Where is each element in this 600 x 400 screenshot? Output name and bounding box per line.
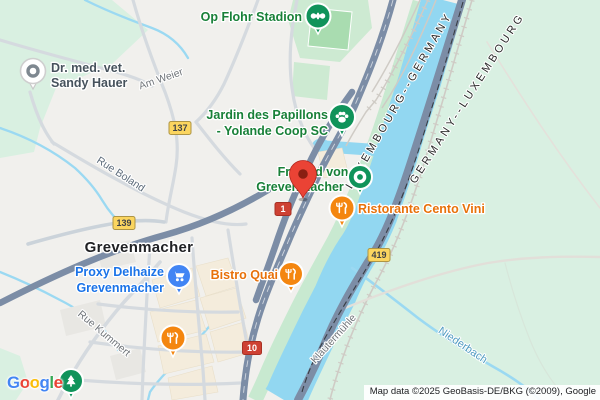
poi-label-bistro-quai[interactable]: Bistro Quai (211, 268, 278, 282)
google-logo[interactable]: Google (7, 373, 63, 393)
stadium-icon (311, 13, 326, 20)
city-label-grevenmacher[interactable]: Grevenmacher (85, 239, 194, 256)
svg-text:419: 419 (371, 250, 386, 260)
poi-label-jardin-line1[interactable]: Jardin des Papillons (206, 108, 328, 122)
route-badge-n10: 10 (243, 342, 262, 355)
poi-label-op-flohr-stadion[interactable]: Op Flohr Stadion (201, 10, 302, 24)
poi-label-jardin-line2[interactable]: - Yolande Coop SC (217, 124, 328, 138)
map-viewport[interactable]: 137 139 419 1 10 Am Weier Rue Boland Rue… (0, 0, 600, 400)
route-badge-n1: 1 (275, 203, 291, 216)
svg-text:10: 10 (247, 343, 257, 353)
route-badge-137: 137 (169, 122, 191, 135)
poi-label-vet-line2[interactable]: Sandy Hauer (51, 76, 128, 90)
route-badge-419: 419 (368, 249, 390, 262)
svg-text:139: 139 (116, 218, 131, 228)
poi-label-proxy-line2[interactable]: Grevenmacher (76, 281, 164, 295)
route-badge-139: 139 (113, 217, 135, 230)
poi-label-ristorante-cento-vini[interactable]: Ristorante Cento Vini (358, 202, 485, 216)
map-canvas[interactable]: 137 139 419 1 10 Am Weier Rue Boland Rue… (0, 0, 600, 400)
svg-text:137: 137 (172, 123, 187, 133)
svg-text:1: 1 (280, 204, 285, 214)
poi-label-proxy-line1[interactable]: Proxy Delhaize (75, 265, 164, 279)
poi-label-vet-line1[interactable]: Dr. med. vet. (51, 61, 125, 75)
map-attribution[interactable]: Map data ©2025 GeoBasis-DE/BKG (©2009), … (364, 385, 600, 400)
